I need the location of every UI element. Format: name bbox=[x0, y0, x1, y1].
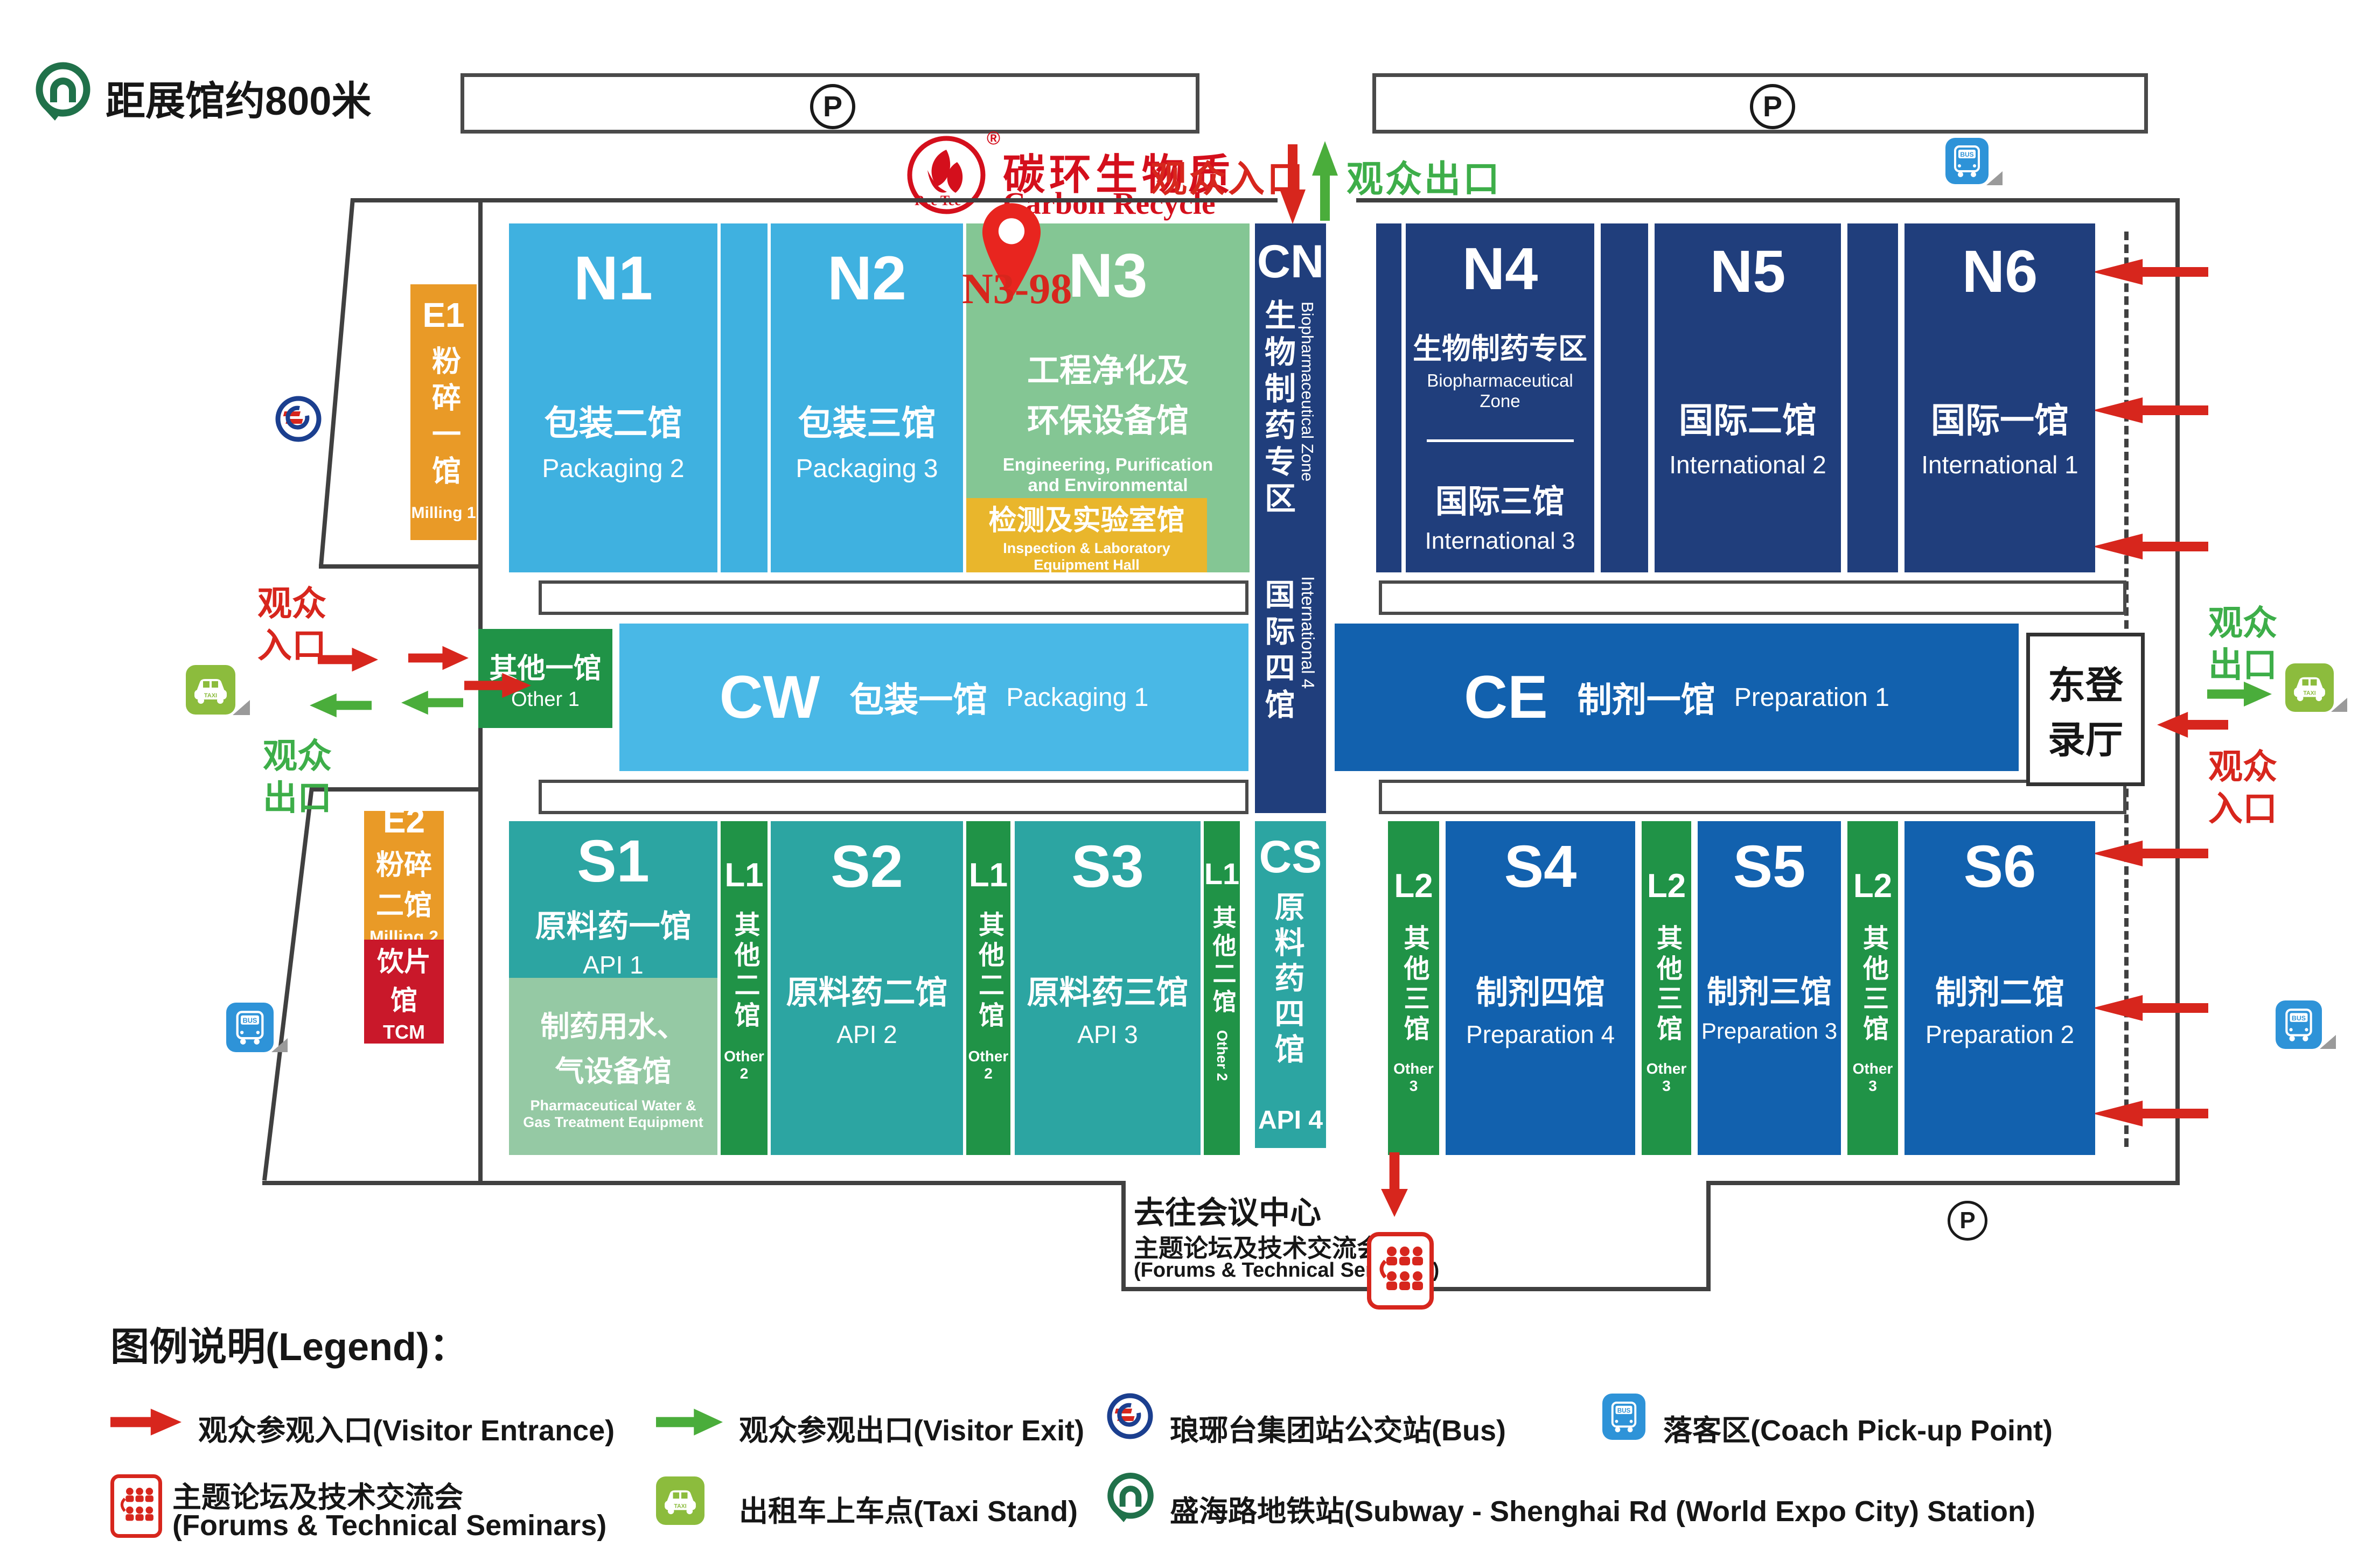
legend-coach-icon: BUS bbox=[1602, 1394, 1645, 1440]
legend-seminar-icon bbox=[110, 1474, 162, 1538]
hall-cs-subtitle: API 4 bbox=[1255, 1105, 1326, 1135]
exhibition-floorplan-map: 距展馆约800米 P P Rec Tec ® 碳环生物质 Carbon Recy… bbox=[0, 0, 2358, 1568]
left-entrance-arrow-3 bbox=[464, 671, 531, 700]
outline-top-left bbox=[351, 198, 1278, 202]
legend-exit-label: 观众参观出口(Visitor Exit) bbox=[739, 1406, 1084, 1449]
outline-step-lower bbox=[310, 787, 478, 792]
outline-slant-lower bbox=[262, 787, 314, 1181]
entrance-down-arrow-icon bbox=[1278, 144, 1308, 224]
icon-shadow bbox=[2320, 1035, 2336, 1049]
hall-intl4-subtitle: International 4 bbox=[1299, 576, 1317, 689]
corridor-north-right bbox=[1379, 580, 2126, 615]
strip-l2-a: L2 其他三馆 Other 3 bbox=[1388, 821, 1439, 1155]
bus-icon-right: BUS bbox=[2276, 1000, 2322, 1049]
legend-subway-icon bbox=[1105, 1471, 1156, 1525]
entry-arrow-right-2 bbox=[2092, 395, 2208, 425]
hall-n5-n6-strip bbox=[1847, 223, 1898, 572]
strip-l1-a: L1 其他二馆 Other 2 bbox=[721, 821, 768, 1155]
exit-up-arrow-icon bbox=[1310, 141, 1340, 221]
hall-cn-subtitle: Biopharmaceutical Zone bbox=[1299, 302, 1316, 481]
right-visitor-exit-label: 观众 出口 bbox=[2208, 602, 2277, 686]
svg-text:BUS: BUS bbox=[2292, 1014, 2306, 1022]
strip-l2-c: L2 其他三馆 Other 3 bbox=[1847, 821, 1898, 1155]
hall-cs-column: CS 原料药四馆 API 4 bbox=[1255, 821, 1326, 1148]
hall-intl4-title: 国际四馆 bbox=[1262, 579, 1293, 725]
entry-arrow-right-3 bbox=[2092, 531, 2208, 562]
legend-seminar-label-2: (Forums & Technical Seminars) bbox=[172, 1509, 606, 1542]
corridor-north-left bbox=[539, 580, 1248, 615]
hall-cn-code: CN bbox=[1255, 235, 1326, 289]
hall-n2: N2 包装三馆 Packaging 3 bbox=[771, 223, 963, 572]
legend-taxi-icon: TAXI bbox=[656, 1476, 704, 1525]
svg-text:BUS: BUS bbox=[1617, 1407, 1631, 1414]
svg-text:TAXI: TAXI bbox=[204, 692, 217, 699]
legend-exit-arrow-icon bbox=[656, 1406, 723, 1438]
hall-n5: N5 国际二馆 International 2 bbox=[1655, 223, 1841, 572]
langyatai-bus-logo-icon bbox=[274, 394, 323, 444]
subway-logo-icon bbox=[33, 60, 93, 124]
taxi-icon-right: TAXI bbox=[2285, 663, 2334, 712]
distance-note: 距展馆约800米 bbox=[106, 69, 371, 127]
hall-cs-title: 原料药四馆 bbox=[1272, 891, 1302, 1069]
hall-s1-water-gas: 制药用水、 气设备馆 Pharmaceutical Water & Gas Tr… bbox=[509, 978, 717, 1155]
inner-wall-lower bbox=[478, 728, 483, 1181]
entry-arrow-right-6 bbox=[2092, 1098, 2208, 1129]
legend-bus-label: 琅琊台集团站公交站(Bus) bbox=[1170, 1406, 1506, 1449]
east-registration-hall: 东登 录厅 bbox=[2026, 633, 2145, 786]
hall-cn-title: 生物制药专区 bbox=[1261, 299, 1293, 519]
notch-left bbox=[1121, 1181, 1126, 1287]
parking-symbol-bottom-right: P bbox=[1948, 1201, 1987, 1241]
conference-title: 去往会议中心 bbox=[1134, 1187, 1321, 1233]
corridor-south-left bbox=[539, 780, 1248, 814]
outline-bottom-right bbox=[1706, 1181, 2178, 1185]
legend-taxi-label: 出租车上车点(Taxi Stand) bbox=[739, 1487, 1078, 1530]
right-entrance-arrow bbox=[2157, 710, 2228, 740]
registered-mark: ® bbox=[987, 128, 1000, 149]
outline-top-right bbox=[1356, 198, 2178, 202]
seminar-icon-map bbox=[1367, 1232, 1434, 1310]
left-entrance-arrow-1 bbox=[318, 646, 378, 674]
icon-shadow bbox=[233, 700, 250, 715]
hall-s2: S2 原料药二馆 API 2 bbox=[771, 821, 963, 1155]
left-exit-arrow-2 bbox=[401, 689, 463, 717]
outline-slant-upper bbox=[319, 198, 355, 565]
inner-wall-upper bbox=[478, 198, 483, 629]
hall-s4: S4 制剂四馆 Preparation 4 bbox=[1446, 821, 1635, 1155]
strip-l1-b: L1 其他二馆 Other 2 bbox=[966, 821, 1010, 1155]
hall-s5: S5 制剂三馆 Preparation 3 bbox=[1698, 821, 1841, 1155]
hall-n4-divider bbox=[1427, 439, 1574, 442]
icon-shadow bbox=[2331, 698, 2347, 712]
outline-bottom-left bbox=[262, 1181, 1121, 1185]
notch-right bbox=[1706, 1181, 1711, 1287]
hall-n4: N4 生物制药专区 Biopharmaceutical Zone 国际三馆 In… bbox=[1406, 223, 1594, 572]
hall-n4-n5-strip bbox=[1601, 223, 1648, 572]
parking-symbol-left: P bbox=[810, 84, 855, 129]
icon-shadow bbox=[271, 1038, 288, 1052]
strip-l1-c: L1 其他二馆 Other 2 bbox=[1204, 821, 1240, 1155]
entry-arrow-right-4 bbox=[2092, 838, 2208, 869]
hall-e2: E2 粉碎 二馆 Milling 2 bbox=[364, 811, 444, 940]
legend-coach-label: 落客区(Coach Pick-up Point) bbox=[1663, 1406, 2053, 1449]
entry-arrow-right-1 bbox=[2092, 257, 2208, 287]
legend-entrance-label: 观众参观入口(Visitor Entrance) bbox=[198, 1406, 615, 1449]
entry-arrow-right-5 bbox=[2092, 993, 2208, 1023]
right-visitor-entrance-label: 观众 入口 bbox=[2208, 746, 2277, 830]
svg-text:BUS: BUS bbox=[1960, 151, 1973, 158]
hall-n4-strip-left bbox=[1376, 223, 1401, 572]
right-exit-arrow bbox=[2207, 680, 2272, 709]
left-visitor-exit-label: 观众 出口 bbox=[263, 735, 332, 819]
hall-cn-column: CN 生物制药专区 Biopharmaceutical Zone 国际四馆 In… bbox=[1255, 223, 1326, 813]
corridor-south-right bbox=[1379, 780, 2126, 814]
legend-subway-label: 盛海路地铁站(Subway - Shenghai Rd (World Expo … bbox=[1170, 1487, 2035, 1530]
legend-entrance-arrow-icon bbox=[110, 1406, 182, 1438]
coach-icon-top-right: BUS bbox=[1945, 138, 1989, 184]
left-visitor-entrance-label: 观众 入口 bbox=[257, 583, 326, 667]
parking-symbol-right: P bbox=[1750, 84, 1795, 129]
hall-n1: N1 包装二馆 Packaging 2 bbox=[509, 223, 717, 572]
legend-bus-logo-icon bbox=[1105, 1391, 1155, 1441]
bus-icon-left: BUS bbox=[226, 1003, 274, 1052]
svg-text:TAXI: TAXI bbox=[2303, 690, 2315, 697]
left-exit-arrow-1 bbox=[310, 691, 372, 719]
conference-down-arrow bbox=[1379, 1152, 1410, 1217]
hall-e1: E1 粉碎一馆 Milling 1 bbox=[410, 284, 477, 540]
icon-shadow bbox=[1986, 171, 2003, 185]
booth-marker-label: N3-98 bbox=[962, 265, 1072, 314]
legend-title: 图例说明(Legend)： bbox=[110, 1315, 468, 1371]
hall-s3: S3 原料药三馆 API 3 bbox=[1015, 821, 1201, 1155]
left-entrance-arrow-2 bbox=[408, 644, 469, 672]
svg-text:TAXI: TAXI bbox=[674, 1503, 686, 1510]
hall-cw: CW 包装一馆 Packaging 1 bbox=[619, 624, 1248, 771]
hall-n1-annex bbox=[721, 223, 768, 572]
hall-tcm: 饮片馆 TCM bbox=[364, 940, 444, 1044]
outline-right bbox=[2175, 198, 2180, 1185]
outline-step-upper bbox=[319, 564, 483, 569]
hall-ce: CE 制剂一馆 Preparation 1 bbox=[1335, 624, 2019, 771]
hall-n3-inspection-lab: 检测及实验室馆 Inspection & Laboratory Equipmen… bbox=[966, 498, 1207, 572]
taxi-icon-left: TAXI bbox=[186, 665, 235, 715]
hall-n6: N6 国际一馆 International 1 bbox=[1904, 223, 2095, 572]
top-visitor-exit-label: 观众出口 bbox=[1347, 157, 1502, 202]
strip-l2-b: L2 其他三馆 Other 3 bbox=[1642, 821, 1691, 1155]
svg-text:BUS: BUS bbox=[243, 1017, 257, 1025]
hall-s6: S6 制剂二馆 Preparation 2 bbox=[1904, 821, 2095, 1155]
hall-cs-code: CS bbox=[1255, 831, 1326, 883]
